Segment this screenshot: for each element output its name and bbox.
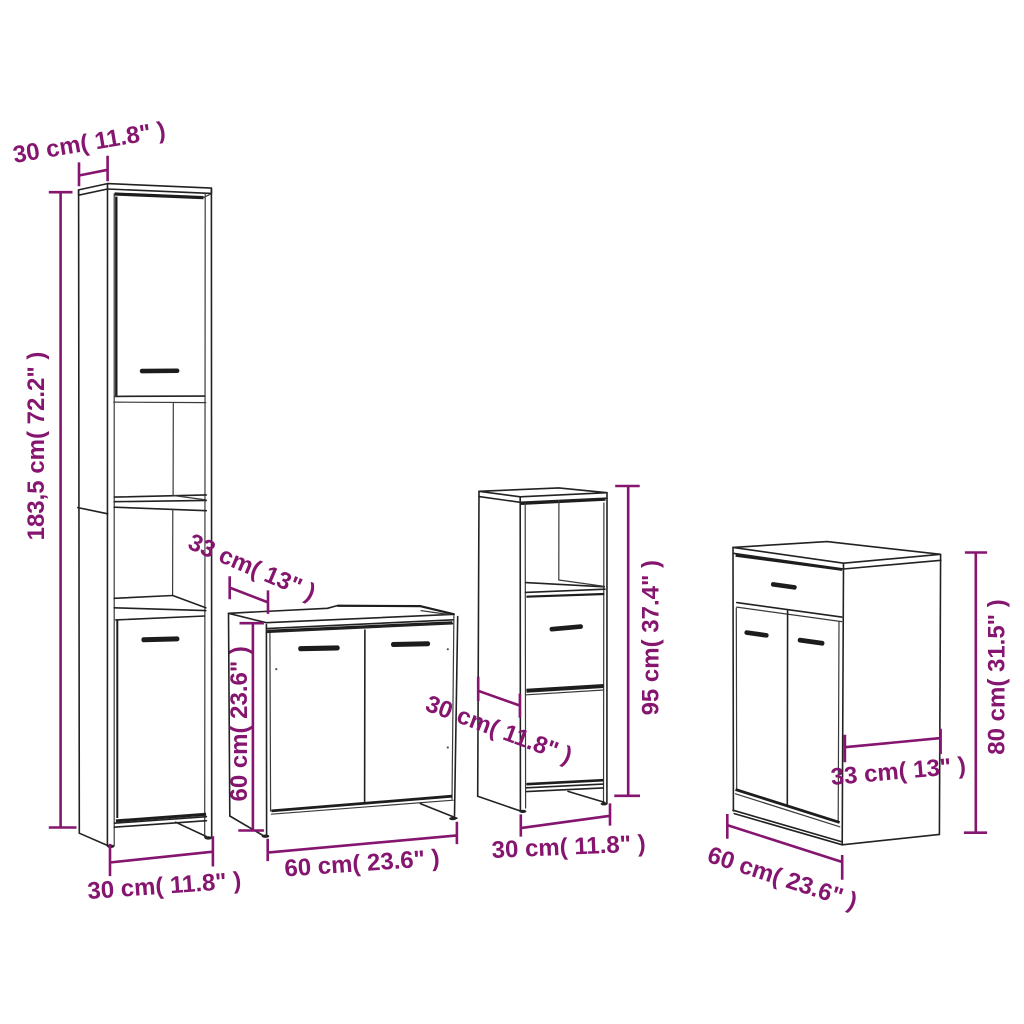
svg-text:60 cm( 23.6" ): 60 cm( 23.6" ) [226, 646, 253, 801]
svg-text:183,5 cm( 72.2" ): 183,5 cm( 72.2" ) [23, 352, 50, 541]
svg-text:80 cm( 31.5" ): 80 cm( 31.5" ) [983, 599, 1010, 754]
svg-text:95 cm( 37.4" ): 95 cm( 37.4" ) [638, 560, 665, 715]
